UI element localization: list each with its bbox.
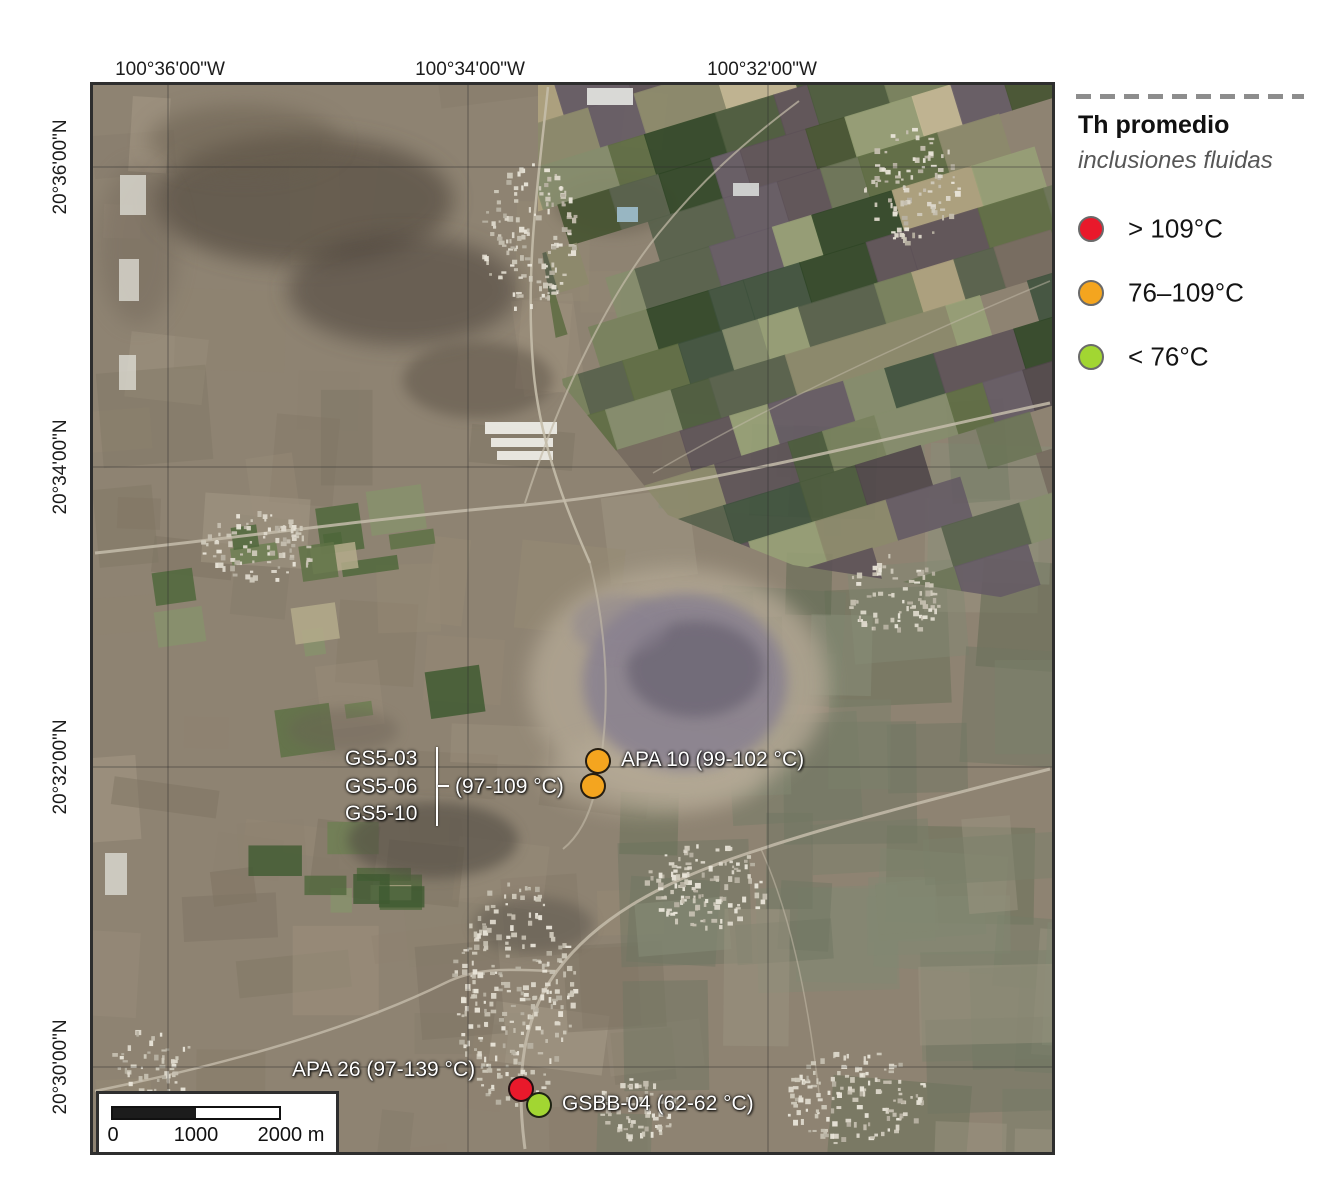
gs5-bracket-tick — [438, 785, 449, 787]
scale-bar-segment-filled — [113, 1108, 196, 1118]
y-tick-label: 20°32'00"N — [50, 719, 72, 814]
y-tick-label: 20°36'00"N — [50, 119, 72, 214]
apa26-label: APA 26 (97-139 °C) — [292, 1058, 475, 1082]
gs5-range-label: (97-109 °C) — [455, 775, 564, 799]
legend-dot-green — [1078, 344, 1104, 370]
scale-bar-rule — [111, 1106, 281, 1120]
x-tick-label: 100°34'00"W — [415, 59, 525, 81]
scale-label-1000: 1000 — [174, 1124, 219, 1147]
sample-dot-gs5 — [580, 773, 606, 799]
gs5-sample-name: GS5-06 — [345, 773, 417, 801]
sample-dot-gsbb04 — [526, 1092, 552, 1118]
legend-label-mid: 76–109°C — [1128, 278, 1244, 309]
gs5-sample-name: GS5-10 — [345, 800, 417, 828]
gs5-sample-list: GS5-03 GS5-06 GS5-10 — [345, 745, 417, 828]
legend-subtitle: inclusiones fluidas — [1078, 147, 1273, 175]
y-tick-label: 20°34'00"N — [50, 419, 72, 514]
y-tick-label: 20°30'00"N — [50, 1019, 72, 1114]
x-tick-label: 100°36'00"W — [115, 59, 225, 81]
legend-title: Th promedio — [1078, 111, 1229, 140]
legend-dot-red — [1078, 216, 1104, 242]
sample-dot-apa10 — [585, 748, 611, 774]
satellite-imagery — [93, 85, 1052, 1152]
legend-label-low: < 76°C — [1128, 342, 1209, 373]
scale-label-2000: 2000 m — [258, 1124, 325, 1147]
scale-bar-segment-empty — [196, 1108, 279, 1118]
apa10-label: APA 10 (99-102 °C) — [621, 748, 804, 772]
map-frame — [90, 82, 1055, 1155]
scale-bar: 0 1000 2000 m — [96, 1091, 339, 1155]
scale-label-0: 0 — [107, 1124, 118, 1147]
gsbb04-label: GSBB-04 (62-62 °C) — [562, 1092, 754, 1116]
gs5-sample-name: GS5-03 — [345, 745, 417, 773]
figure-canvas: 100°36'00"W 100°34'00"W 100°32'00"W 20°3… — [0, 0, 1335, 1183]
legend-dashed-rule — [1076, 94, 1304, 99]
legend-label-high: > 109°C — [1128, 214, 1223, 245]
x-tick-label: 100°32'00"W — [707, 59, 817, 81]
legend-dot-orange — [1078, 280, 1104, 306]
